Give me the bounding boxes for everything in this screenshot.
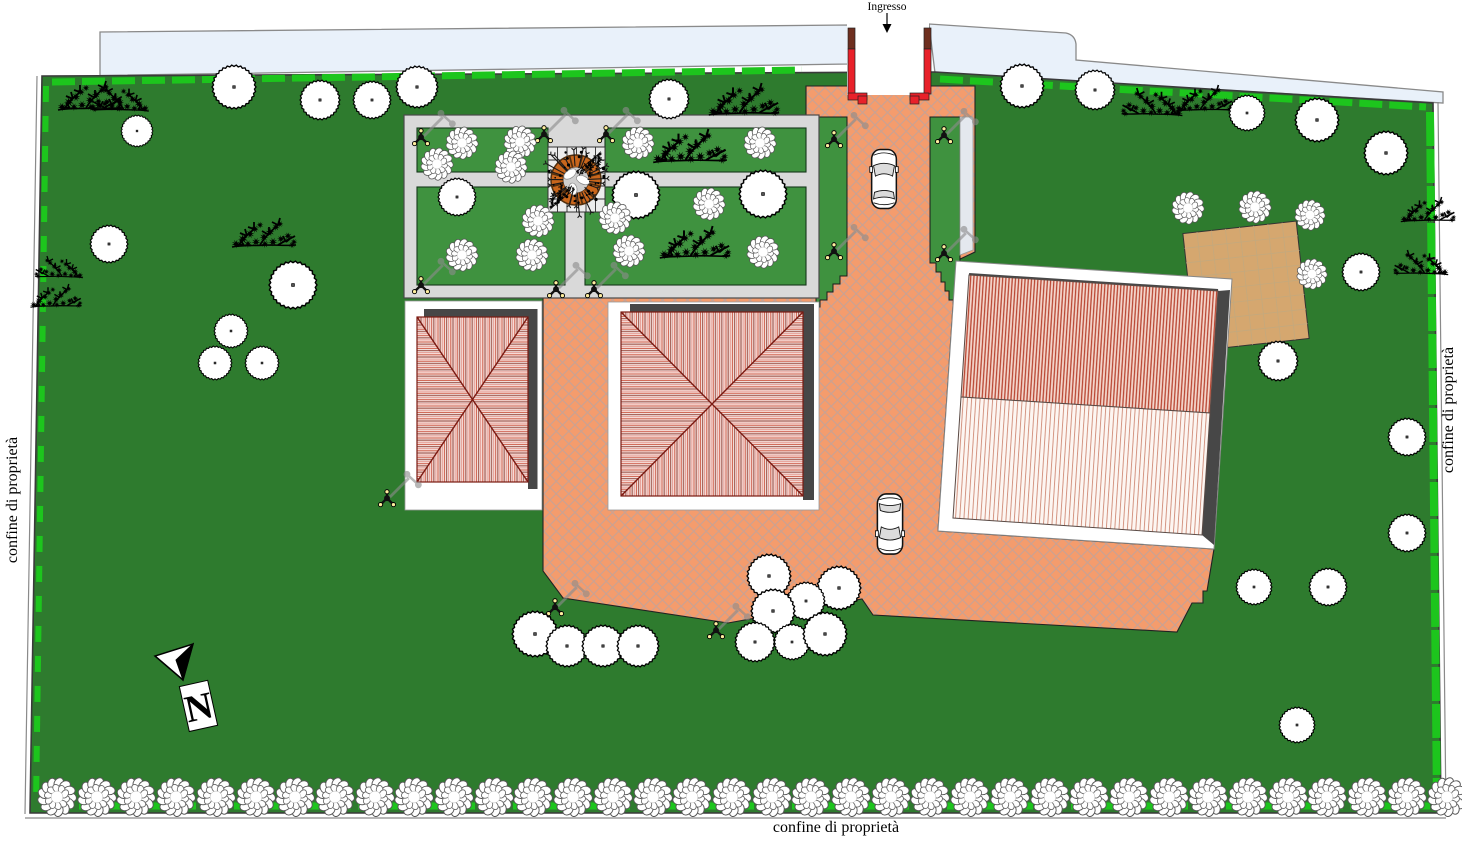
svg-text:confine di proprietà: confine di proprietà [1440, 347, 1457, 473]
svg-text:Ingresso: Ingresso [868, 1, 907, 13]
svg-text:confine di proprietà: confine di proprietà [773, 819, 899, 836]
svg-text:confine di proprietà: confine di proprietà [4, 437, 21, 563]
